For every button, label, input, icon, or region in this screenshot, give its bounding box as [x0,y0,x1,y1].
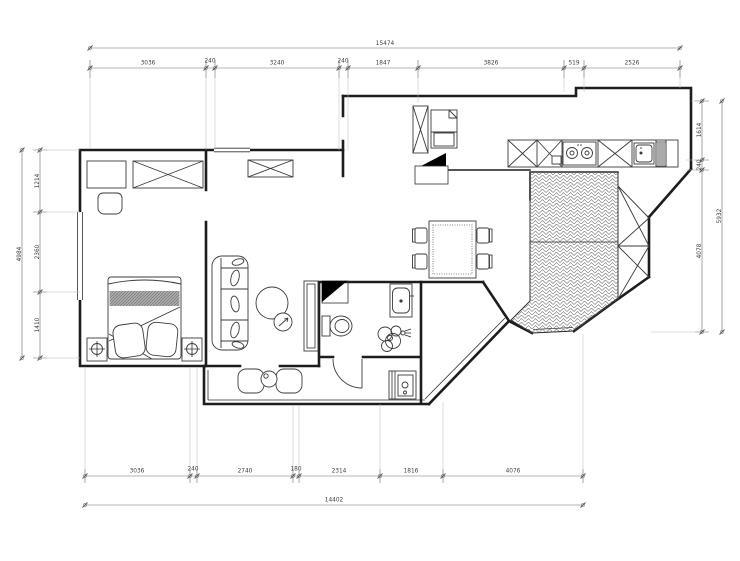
dim-label: 240 [337,59,348,65]
door-swing-icon [333,359,362,388]
floor-plan-canvas: 15474 3036 240 3240 240 1847 3826 519 25… [0,0,740,561]
chair-icon [477,254,492,269]
basin-icon [390,284,414,317]
dimension-chain-bottom: 3036 240 2740 180 2314 1816 4076 14402 [83,334,586,508]
entry-step [415,166,448,184]
tv-cabinet-icon [304,281,318,351]
dim-label: 240 [204,59,215,65]
bay-panel-x-bottom [618,246,649,299]
stove-icon [563,142,596,165]
bay-panel-x-top [618,186,649,246]
shoe-cabinet-icon [413,106,428,153]
dim-label: 240 [697,159,703,170]
tiled-floor-area [511,172,649,333]
dim-label: 4078 [697,243,703,258]
dim-label: 3036 [130,469,145,475]
bedroom [87,160,293,361]
dim-total-right: 5932 [717,208,723,223]
dim-label: 1410 [35,317,41,332]
sink-icon [634,143,654,164]
pillow-icon [145,322,178,358]
bathroom [322,281,414,352]
wardrobe-icon [133,161,203,188]
dim-label: 3036 [141,61,156,67]
toilet-icon [322,316,352,336]
dim-total-top: 15474 [376,41,395,47]
wall-cabinet-icon [248,160,293,177]
dim-label: 3240 [270,61,285,67]
pouf-icon [276,369,302,393]
side-table-icon [261,371,277,387]
bay-window-panels [618,186,649,299]
living-room [212,256,318,351]
dining-table-icon [429,221,476,278]
balcony [238,359,416,399]
dim-total-bottom: 14402 [325,498,344,504]
dim-label: 1847 [376,61,391,67]
dim-label: 2314 [332,469,347,475]
entry [413,106,457,184]
dim-label: 2740 [238,469,253,475]
dining [413,221,493,278]
shower-corner-icon [322,281,348,303]
dim-label: 3826 [484,61,499,67]
dim-label: 180 [290,467,301,473]
chair-icon [477,228,492,243]
balcony-walls [204,321,509,404]
counter-small-box [552,156,561,164]
dim-label: 2526 [625,61,640,67]
nightstand-icon [87,338,107,361]
dining-chairs [413,228,493,269]
tea-table-icon [256,287,292,331]
dimension-chain-left: 1214 2360 1410 4984 [17,148,80,361]
window-gap-top [214,147,250,154]
entry-marker-triangle [421,153,446,166]
floor-plan: 15474 3036 240 3240 240 1847 3826 519 25… [0,0,740,561]
bed-icon [108,277,181,359]
dim-total-left: 4984 [17,246,23,261]
dim-label: 1214 [35,173,41,188]
dim-label: 1816 [404,469,419,475]
bathroom-walls [319,282,421,402]
sofa-icon [212,256,248,350]
chair-icon [413,228,428,243]
dim-label: 240 [187,467,198,473]
dim-label: 519 [568,61,579,67]
fridge-icon [431,110,457,148]
chair-blob-icon [98,193,122,214]
dim-label: 1614 [697,122,703,137]
cabinet-icon [87,161,126,188]
appliance-icon [656,142,666,166]
dim-label: 2360 [35,244,41,259]
plant-icon [378,326,411,352]
chair-icon [413,254,428,269]
herringbone-floor [511,172,618,333]
pouf-icon [238,369,264,393]
dim-label: 4076 [506,469,521,475]
nightstand-icon [182,338,202,361]
dimension-chain-right: 1614 240 4078 5932 [651,99,725,335]
kitchen [508,140,678,167]
bay-walls [343,88,691,333]
pillow-icon [112,322,146,359]
mattress-hatch [110,291,180,306]
dining-south-wall [421,282,509,321]
washing-machine-icon [389,371,416,399]
